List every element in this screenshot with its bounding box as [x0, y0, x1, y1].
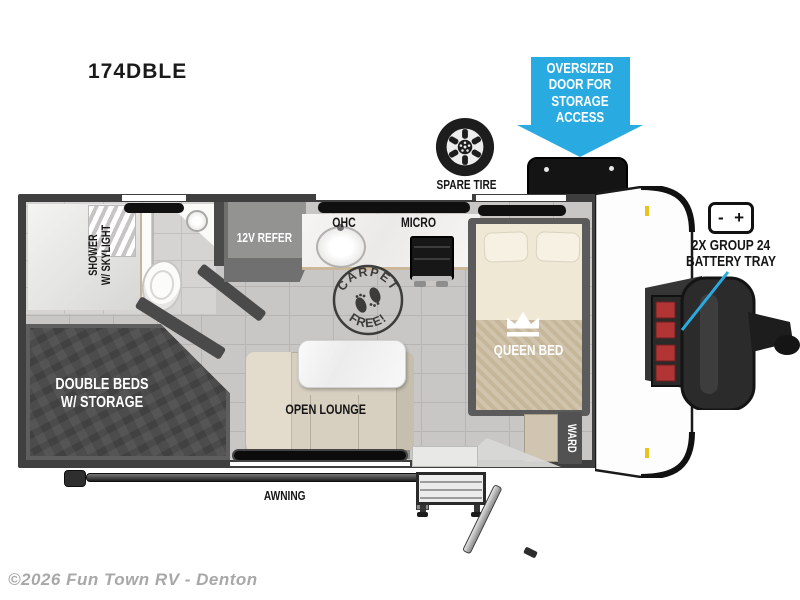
battery-minus: -	[718, 208, 724, 228]
shower-label: SHOWER W/ SKYLIGHT	[88, 200, 122, 310]
ohc-label: OHC	[316, 216, 372, 231]
battery-icon: - +	[708, 202, 754, 234]
awning-bar	[86, 473, 426, 482]
bathroom-sink-bowl	[186, 210, 208, 232]
step-tread	[420, 497, 482, 499]
awning-end-cap	[64, 470, 86, 487]
lounge-table	[298, 340, 406, 388]
awning-label: AWNING	[253, 489, 317, 503]
micro-label: MICRO	[390, 216, 446, 231]
queen-bed-label: QUEEN BED	[470, 343, 588, 360]
ward-label: WARD	[562, 413, 578, 463]
window	[478, 205, 566, 216]
refrigerator-front	[224, 258, 310, 282]
window-frame	[122, 195, 186, 201]
svg-text:CARPET: CARPET	[335, 265, 402, 294]
stove-grate	[414, 258, 450, 260]
step-tread	[420, 489, 482, 491]
oversized-door-line1: OVERSIZED	[533, 61, 627, 77]
free-label: FREE!	[347, 311, 390, 331]
window	[232, 449, 408, 462]
battery-plus: +	[734, 208, 744, 228]
pillow	[483, 231, 528, 263]
oversized-door-line2: DOOR FOR	[533, 77, 627, 93]
window-frame	[476, 195, 566, 201]
svg-text:FREE!: FREE!	[347, 311, 390, 331]
oversized-door-callout: OVERSIZED DOOR FOR STORAGE ACCESS	[521, 61, 639, 127]
oversized-door-line4: ACCESS	[533, 110, 627, 126]
entry-door-landing	[412, 446, 478, 467]
step-foot	[417, 512, 428, 517]
window-frame	[316, 194, 472, 200]
battery-tray-label: 2X GROUP 24 BATTERY TRAY	[671, 238, 791, 270]
step-tread	[420, 481, 482, 483]
pillow	[535, 231, 580, 263]
window	[124, 203, 184, 213]
oversized-door-line3: STORAGE	[533, 94, 627, 110]
stove-knob	[436, 281, 448, 287]
assist-handle-foot	[523, 547, 538, 559]
floorplan-page: 174DBLE ©2026 Fun Town RV - Denton OVERS…	[0, 0, 800, 600]
storage-door-screw	[544, 167, 549, 172]
model-title: 174DBLE	[88, 60, 187, 83]
window	[318, 202, 470, 213]
stove-knob	[414, 281, 426, 287]
double-beds-label: DOUBLE BEDS W/ STORAGE	[28, 376, 176, 411]
stove-grate	[414, 246, 450, 248]
spare-tire-icon	[434, 116, 496, 178]
spare-tire-label: SPARE TIRE	[428, 178, 502, 192]
tongue-and-battery-tray	[640, 250, 800, 410]
carpet-label: CARPET	[335, 265, 402, 294]
copyright-text: ©2026 Fun Town RV - Denton	[8, 570, 258, 590]
refer-label: 12V REFER	[220, 231, 308, 245]
crown-icon	[503, 310, 543, 339]
footprints-icon	[353, 286, 382, 315]
storage-door-screw	[609, 166, 614, 171]
carpet-free-badge: CARPET FREE!	[330, 262, 406, 338]
window-frame	[230, 462, 410, 466]
open-lounge-label: OPEN LOUNGE	[256, 402, 396, 417]
